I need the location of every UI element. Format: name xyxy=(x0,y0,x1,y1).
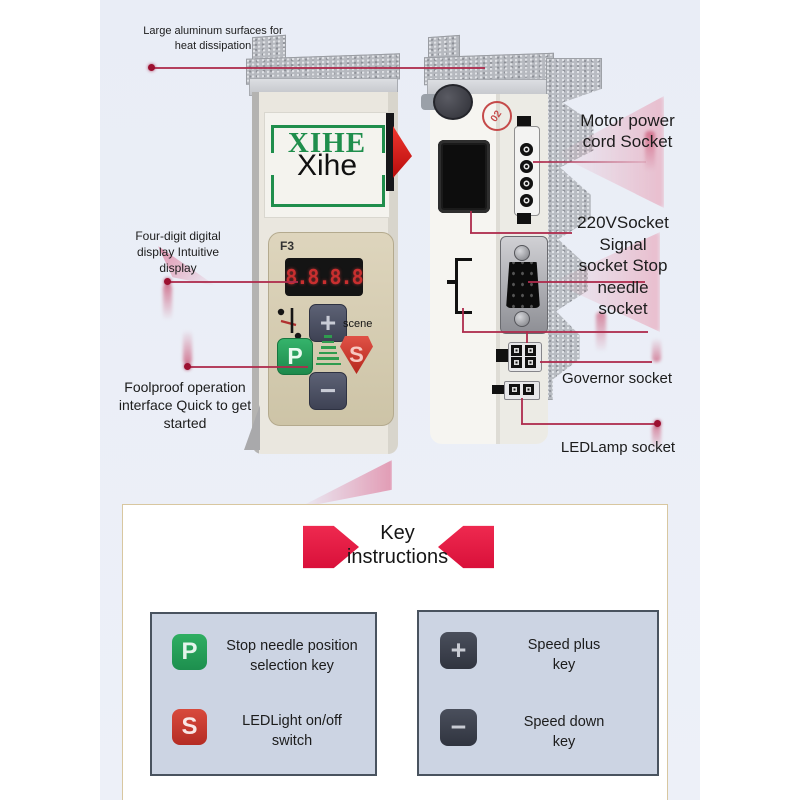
plus-key-description: Speed plus key xyxy=(489,636,639,675)
annotation-line-motor xyxy=(533,161,646,163)
pin-1 xyxy=(520,143,533,156)
annotation-dot-display xyxy=(164,278,171,285)
pin-3 xyxy=(520,177,533,190)
key-box-left: P Stop needle position selection key S L… xyxy=(150,612,377,776)
control-panel: F3 8.8.8.8 + scene P S − xyxy=(268,232,394,426)
governor-pin-3 xyxy=(511,357,522,368)
product-annotation-page: XIHE Xihe F3 8.8.8.8 + scene P xyxy=(0,0,800,800)
annotation-line-governor-v xyxy=(526,331,528,343)
callout-fade xyxy=(183,330,192,364)
db9-pin-field xyxy=(505,262,541,308)
plus-key-icon: + xyxy=(440,632,477,669)
cable-gland-knob xyxy=(433,84,473,120)
cable-clip xyxy=(455,258,472,314)
annotation-line-governor xyxy=(540,361,652,363)
cable-clip-stub xyxy=(447,280,457,284)
led-pin-1 xyxy=(509,384,520,395)
annotation-line-led xyxy=(521,423,658,425)
s-key-description: LEDLight on/off switch xyxy=(217,712,367,751)
speed-level-bars xyxy=(314,332,342,368)
segment-display: 8.8.8.8 xyxy=(285,258,363,296)
minus-key-icon: − xyxy=(440,709,477,746)
scene-label: scene xyxy=(343,318,391,330)
db9-screw-bottom xyxy=(514,311,530,327)
pin-2 xyxy=(520,160,533,173)
governor-pin-1 xyxy=(511,345,522,356)
led-lamp-socket-label: LEDLamp socket xyxy=(556,439,680,456)
annotation-dot-foolproof xyxy=(184,363,191,370)
led-pin-2 xyxy=(523,384,534,395)
brand-logo-panel: XIHE Xihe xyxy=(264,112,390,218)
minus-key-description: Speed down key xyxy=(489,713,639,752)
qc-sticker-text: 02 xyxy=(489,108,504,123)
annotation-line-led-v xyxy=(521,398,523,424)
annotation-line-220v xyxy=(470,232,572,234)
annotation-line-foolproof xyxy=(188,366,308,368)
annotation-dot-heat xyxy=(148,64,155,71)
four-digit-display-label: Four-digit digital display Intuitive dis… xyxy=(108,228,248,277)
callout-fade xyxy=(163,284,172,320)
led-tab xyxy=(492,385,504,394)
power-socket-220v xyxy=(438,140,490,213)
socket-220v-label: 220VSocket Signal socket Stop needle soc… xyxy=(563,212,683,320)
needle-position-p-button: P xyxy=(277,338,313,375)
governor-pin-4 xyxy=(525,357,536,368)
model-label: F3 xyxy=(280,239,294,253)
heat-dissipation-label: Large aluminum surfaces for heat dissipa… xyxy=(128,24,298,55)
motor-power-label: Motor power cord Socket xyxy=(560,111,695,152)
governor-socket-label: Governor socket xyxy=(555,370,679,387)
power-switch-slot xyxy=(386,113,394,191)
pin-4 xyxy=(520,194,533,207)
segment-display-value: 8.8.8.8 xyxy=(285,265,362,289)
annotation-line-clip xyxy=(462,331,648,333)
s-key-icon: S xyxy=(172,709,207,745)
annotation-line-display xyxy=(168,281,298,283)
foolproof-label: Foolproof operation interface Quick to g… xyxy=(100,378,270,433)
p-key-description: Stop needle position selection key xyxy=(217,637,367,676)
led-s-button: S xyxy=(340,336,373,374)
p-key-icon: P xyxy=(172,634,207,670)
brand-overlay-text: Xihe xyxy=(265,149,389,183)
governor-pin-2 xyxy=(525,345,536,356)
connector-tab-bottom xyxy=(517,213,531,224)
callout-fade xyxy=(652,338,661,362)
annotation-dot-led xyxy=(654,420,661,427)
qc-sticker: 02 xyxy=(482,101,512,131)
key-instructions-title: Key instructions xyxy=(305,521,490,569)
annotation-line-heat xyxy=(152,67,485,69)
annotation-line-220v-v xyxy=(470,211,472,233)
key-box-right: + Speed plus key − Speed down key xyxy=(417,610,659,776)
annotation-line-clip-v xyxy=(462,308,464,332)
db9-screw-top xyxy=(514,245,530,261)
speed-minus-button: − xyxy=(309,372,347,410)
